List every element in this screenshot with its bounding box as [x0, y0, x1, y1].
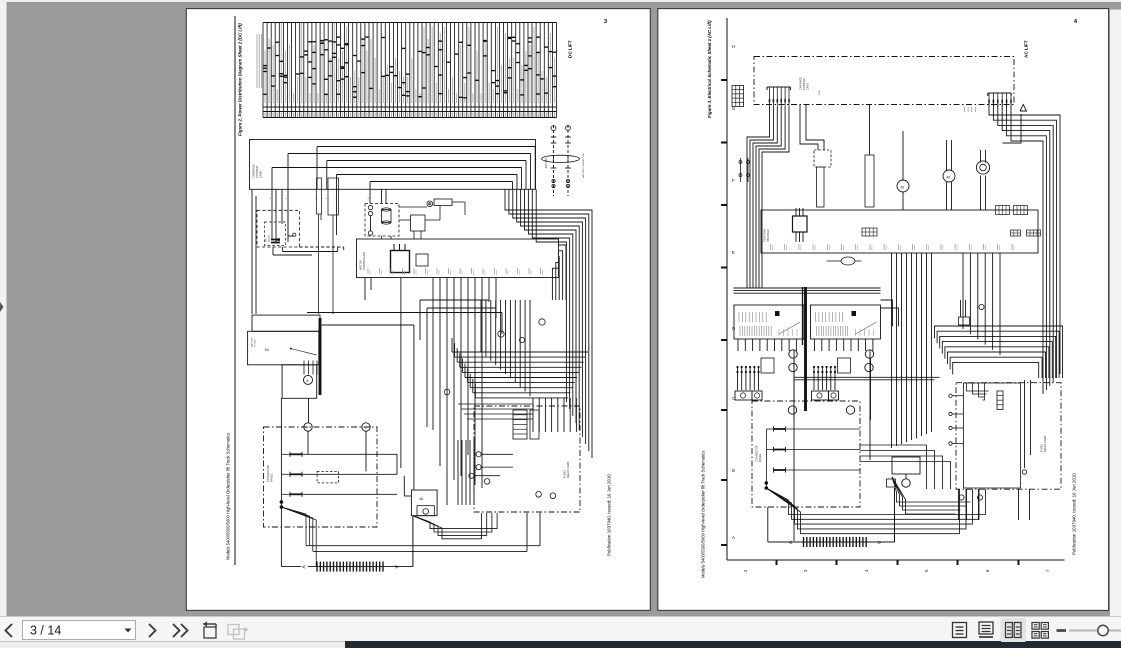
svg-text:3: 3	[604, 19, 607, 25]
svg-text:INVERTER: INVERTER	[767, 229, 770, 242]
svg-text:DC LIFT: DC LIFT	[568, 40, 573, 58]
svg-text:CARD: CARD	[259, 171, 263, 178]
svg-text:5A: 5A	[265, 348, 270, 352]
svg-text:M: M	[947, 175, 950, 180]
svg-text:B: B	[732, 468, 735, 473]
svg-text:Models 5400/5500/5600 High-lev: Models 5400/5500/5600 High-level Orderpi…	[226, 433, 231, 560]
svg-text:RELAY CARD: RELAY CARD	[566, 462, 570, 478]
svg-text:Figure 3. Electrical Schemati: Figure 3. Electrical Schematic Sheet 1 (…	[707, 20, 712, 118]
svg-text:PWR: PWR	[819, 89, 821, 95]
svg-text:CARD: CARD	[807, 83, 810, 90]
svg-text:ISO: ISO	[266, 238, 268, 242]
svg-text:A: A	[732, 535, 735, 540]
svg-text:<: <	[302, 564, 306, 571]
svg-text:F: F	[732, 178, 735, 183]
svg-text:BATTERY: BATTERY	[251, 337, 254, 347]
svg-text:FUSE/: FUSE/	[563, 470, 567, 478]
svg-text:PANEL: PANEL	[270, 473, 274, 482]
svg-text:E: E	[732, 250, 735, 255]
svg-text:MOTOR: MOTOR	[359, 260, 363, 270]
svg-text:CONNECTOR: CONNECTOR	[266, 465, 270, 482]
svg-text:>: >	[878, 539, 882, 546]
svg-text:CONTROL: CONTROL	[255, 165, 259, 178]
svg-text:Publication 1037940, Issued: 1: Publication 1037940, Issued: 10 Jun 2010	[607, 474, 612, 556]
svg-text:AC LIFT: AC LIFT	[1024, 40, 1029, 58]
svg-text:72 VOLT: 72 VOLT	[255, 338, 257, 347]
svg-text:PANEL: PANEL	[758, 453, 762, 462]
svg-text:BATTERY: BATTERY	[545, 157, 548, 168]
svg-text:H: H	[732, 44, 735, 49]
svg-text:F: F	[307, 426, 309, 430]
svg-text:Models 5400/5500/5600 High-lev: Models 5400/5500/5600 High-level Orderpi…	[701, 451, 706, 578]
svg-text:3 / 14: 3 / 14	[30, 624, 61, 638]
svg-text:>: >	[395, 564, 399, 571]
svg-text:<: <	[789, 539, 793, 546]
svg-text:FUSE/: FUSE/	[1040, 444, 1044, 452]
svg-text:CONNECTOR: CONNECTOR	[755, 445, 759, 462]
svg-text:RELAY: RELAY	[268, 234, 271, 242]
svg-text:CONTROLLER: CONTROLLER	[362, 252, 366, 270]
svg-text:RELAY CARD: RELAY CARD	[1043, 436, 1047, 452]
svg-text:Publication 1037940, Issued: 1: Publication 1037940, Issued: 10 Jun 2010	[1072, 473, 1077, 555]
svg-text:CARRIAGE: CARRIAGE	[252, 164, 256, 178]
svg-text:BATTERY CONNECTOR: BATTERY CONNECTOR	[582, 153, 585, 178]
svg-text:M: M	[901, 185, 904, 190]
svg-text:Figure 2. Power Distribution: Figure 2. Power Distribution Diagram She…	[238, 23, 243, 136]
